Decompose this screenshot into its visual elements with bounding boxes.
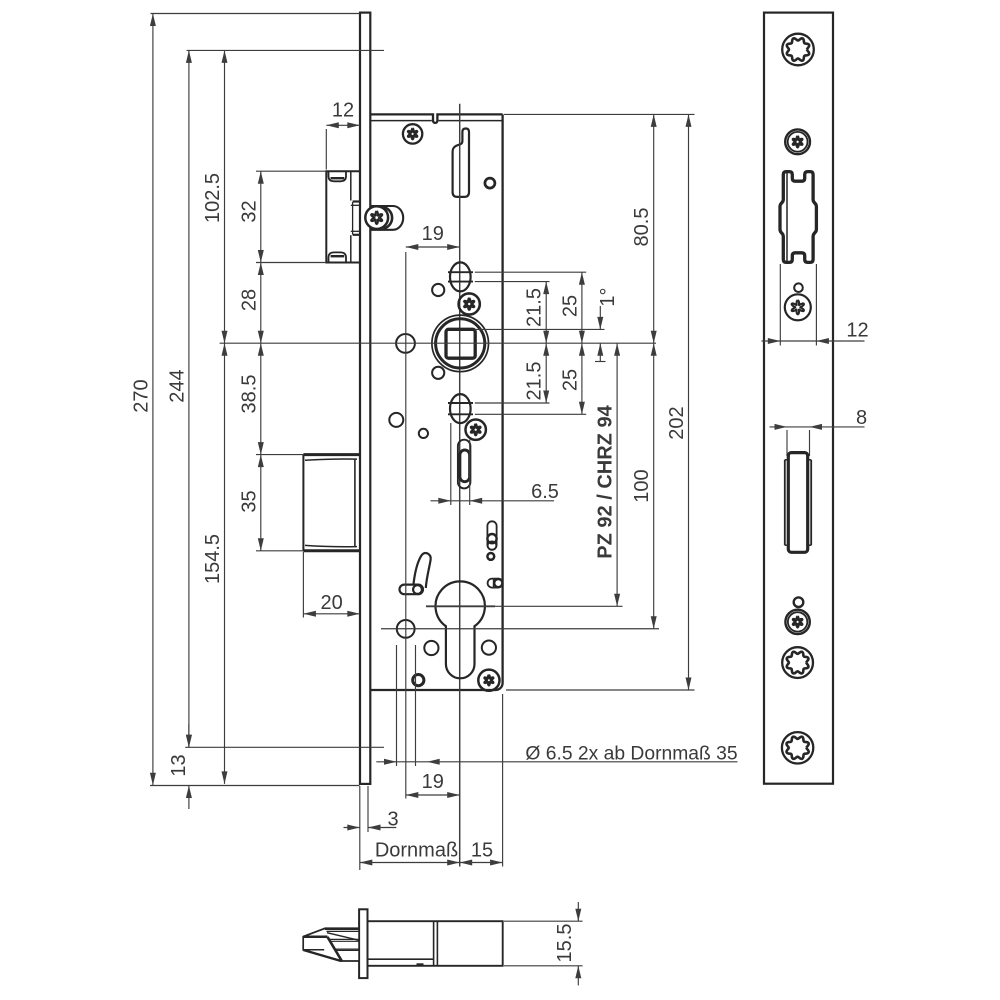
svg-text:Dornmaß: Dornmaß xyxy=(375,840,458,862)
svg-text:19: 19 xyxy=(422,223,444,245)
svg-text:38.5: 38.5 xyxy=(238,375,260,414)
svg-text:6.5: 6.5 xyxy=(531,481,559,503)
svg-text:20: 20 xyxy=(320,592,342,614)
svg-text:202: 202 xyxy=(666,406,688,439)
svg-text:12: 12 xyxy=(332,99,354,121)
svg-text:PZ 92 / CHRZ 94: PZ 92 / CHRZ 94 xyxy=(595,404,617,558)
svg-text:244: 244 xyxy=(166,369,188,402)
svg-text:1°: 1° xyxy=(597,287,619,306)
svg-text:3: 3 xyxy=(387,808,398,830)
svg-text:154.5: 154.5 xyxy=(202,534,224,584)
svg-text:25: 25 xyxy=(559,369,581,391)
svg-text:Ø 6.5 2x ab Dornmaß 35: Ø 6.5 2x ab Dornmaß 35 xyxy=(525,744,737,765)
svg-text:25: 25 xyxy=(559,295,581,317)
svg-text:80.5: 80.5 xyxy=(631,208,653,247)
svg-text:28: 28 xyxy=(238,289,260,311)
svg-text:19: 19 xyxy=(422,771,444,793)
svg-text:15: 15 xyxy=(471,840,493,862)
svg-text:32: 32 xyxy=(238,200,260,222)
svg-text:35: 35 xyxy=(238,490,260,512)
svg-text:270: 270 xyxy=(130,379,152,412)
svg-text:102.5: 102.5 xyxy=(202,173,224,223)
svg-text:12: 12 xyxy=(846,320,868,342)
svg-text:21.5: 21.5 xyxy=(524,288,546,327)
svg-text:15.5: 15.5 xyxy=(554,924,576,963)
svg-text:100: 100 xyxy=(631,469,653,502)
svg-text:8: 8 xyxy=(856,407,867,429)
svg-text:13: 13 xyxy=(168,754,190,776)
svg-text:21.5: 21.5 xyxy=(524,362,546,401)
